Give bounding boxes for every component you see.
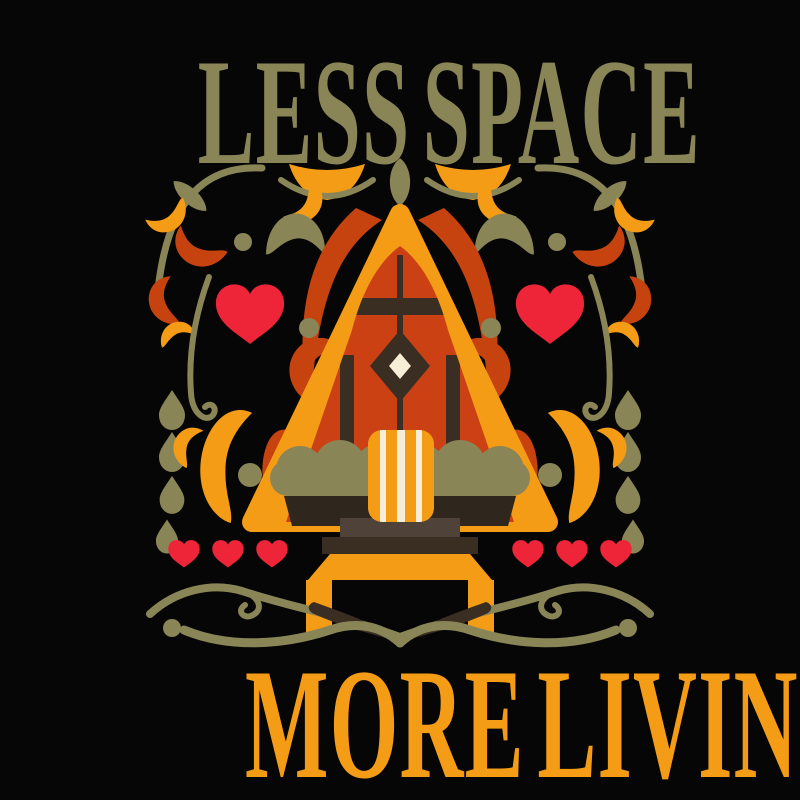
chair-stripe [380,430,386,522]
title-bottom-text: MORE LIVING [245,646,800,800]
pedestal-step-bottom [322,537,478,554]
title-bottom: MORE LIVING [0,646,800,800]
leaf-icon [390,158,410,206]
chair-stripe [416,430,422,522]
wave-half [400,587,650,643]
waves-left [150,587,400,643]
poster: LESS SPACE [0,0,800,800]
wave-half [150,587,400,643]
a-frame-cabin [252,214,548,634]
striped-armchair [368,430,434,522]
waves-right [400,587,650,643]
bench-top [308,554,492,580]
chair-stripe [397,430,405,522]
